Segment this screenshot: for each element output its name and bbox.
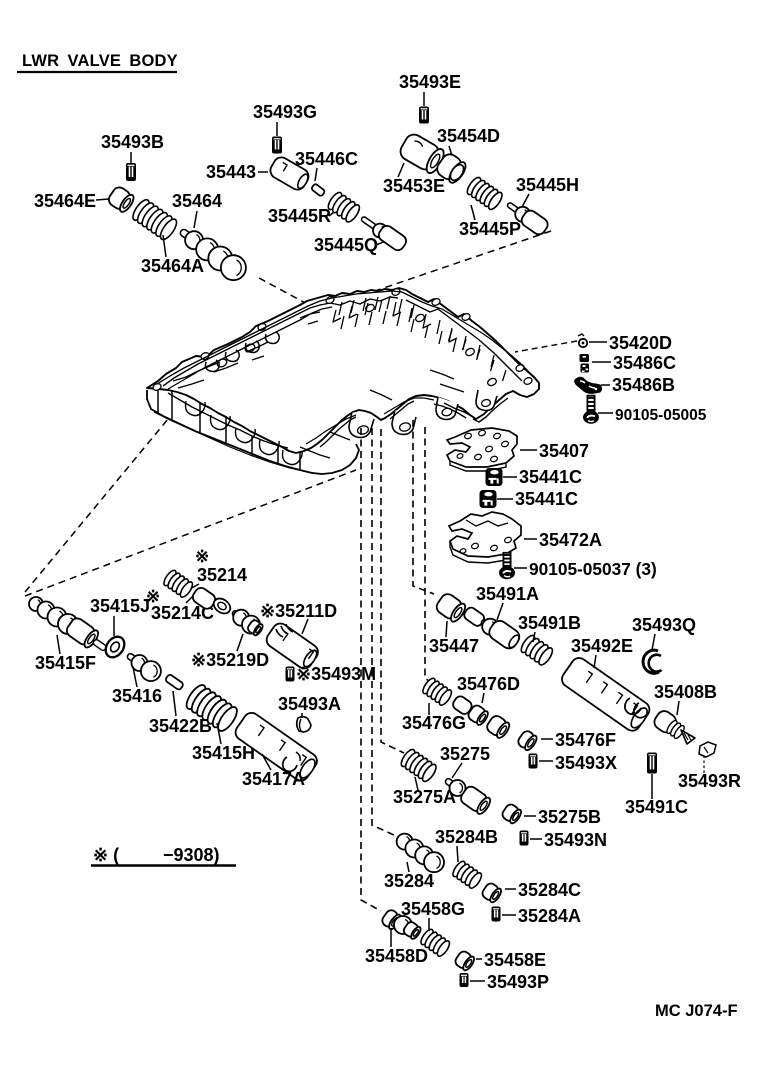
svg-text:90105-05005: 90105-05005: [615, 407, 707, 424]
svg-text:35486B: 35486B: [612, 375, 675, 395]
svg-text:35454D: 35454D: [437, 126, 500, 146]
svg-text:35284C: 35284C: [518, 880, 581, 900]
svg-text:35493X: 35493X: [555, 753, 617, 773]
svg-text:35284A: 35284A: [518, 906, 581, 926]
svg-text:35446C: 35446C: [295, 149, 358, 169]
svg-text:※35211D: ※35211D: [260, 601, 337, 621]
svg-text:35453E: 35453E: [383, 176, 445, 196]
svg-text:35441C: 35441C: [519, 467, 582, 487]
svg-text:35447: 35447: [429, 636, 479, 656]
svg-text:35417A: 35417A: [242, 769, 305, 789]
svg-text:35486C: 35486C: [613, 353, 676, 373]
svg-text:35493Q: 35493Q: [632, 615, 696, 635]
svg-text:35443: 35443: [206, 162, 256, 182]
svg-text:35492E: 35492E: [571, 636, 633, 656]
svg-text:35464: 35464: [172, 191, 222, 211]
svg-text:35493N: 35493N: [544, 830, 607, 850]
svg-text:35493G: 35493G: [253, 102, 317, 122]
svg-text:35284: 35284: [384, 871, 434, 891]
svg-text:35275B: 35275B: [538, 807, 601, 827]
svg-text:35472A: 35472A: [539, 530, 602, 550]
svg-text:35491C: 35491C: [625, 797, 688, 817]
svg-text:35441C: 35441C: [515, 489, 578, 509]
svg-text:MC J074-F: MC J074-F: [655, 1002, 738, 1020]
svg-text:35464A: 35464A: [141, 256, 204, 276]
svg-text:35284B: 35284B: [435, 827, 498, 847]
svg-text:35408B: 35408B: [654, 682, 717, 702]
svg-text:35445P: 35445P: [459, 219, 521, 239]
svg-text:※35493M: ※35493M: [296, 664, 376, 684]
svg-text:※35219D: ※35219D: [191, 650, 269, 670]
svg-text:35476G: 35476G: [402, 713, 466, 733]
svg-text:35445R: 35445R: [268, 206, 331, 226]
svg-text:35493P: 35493P: [487, 972, 549, 992]
svg-text:35476F: 35476F: [555, 730, 616, 750]
svg-text:35415H: 35415H: [192, 743, 255, 763]
svg-text:35415F: 35415F: [35, 653, 96, 673]
svg-text:35458G: 35458G: [401, 899, 465, 919]
svg-text:35445Q: 35445Q: [314, 235, 378, 255]
svg-text:35493E: 35493E: [399, 72, 461, 92]
svg-text:35493R: 35493R: [678, 771, 741, 791]
svg-text:35493A: 35493A: [278, 694, 341, 714]
svg-text:35445H: 35445H: [516, 175, 579, 195]
svg-text:※ (: ※ (: [93, 845, 119, 865]
svg-text:LWR VALVE BODY: LWR VALVE BODY: [22, 52, 178, 70]
svg-text:35214: 35214: [197, 565, 247, 585]
svg-text:35491B: 35491B: [518, 613, 581, 633]
svg-text:35275A: 35275A: [393, 787, 456, 807]
svg-text:※: ※: [195, 547, 209, 566]
svg-text:35407: 35407: [539, 441, 589, 461]
svg-text:35476D: 35476D: [457, 674, 520, 694]
svg-text:90105-05037 (3): 90105-05037 (3): [529, 559, 657, 579]
svg-text:35416: 35416: [112, 686, 162, 706]
svg-text:−9308): −9308): [163, 845, 220, 865]
svg-text:35275: 35275: [440, 744, 490, 764]
svg-text:35415J: 35415J: [90, 596, 150, 616]
svg-text:35458E: 35458E: [484, 950, 546, 970]
svg-text:35491A: 35491A: [476, 584, 539, 604]
svg-text:35464E: 35464E: [34, 191, 96, 211]
svg-text:35458D: 35458D: [365, 946, 428, 966]
svg-text:35420D: 35420D: [609, 333, 672, 353]
svg-text:35493B: 35493B: [101, 132, 164, 152]
